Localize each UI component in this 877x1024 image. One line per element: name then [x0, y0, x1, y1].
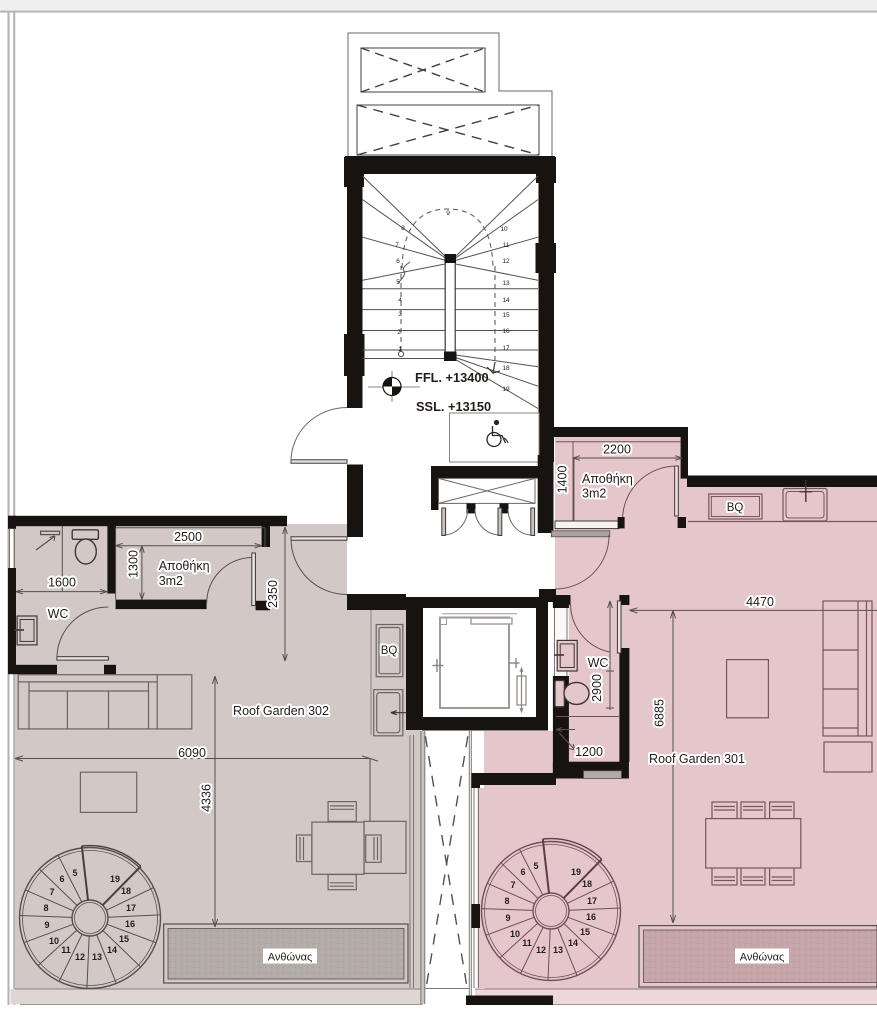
svg-text:1300: 1300 [127, 550, 141, 578]
svg-text:3: 3 [398, 311, 402, 318]
svg-text:4470: 4470 [746, 595, 774, 609]
svg-text:14: 14 [502, 297, 510, 304]
svg-text:15: 15 [119, 934, 129, 944]
svg-text:14: 14 [107, 945, 117, 955]
svg-text:10: 10 [49, 936, 59, 946]
svg-text:19: 19 [110, 874, 120, 884]
svg-text:9: 9 [44, 920, 49, 930]
svg-text:9: 9 [446, 210, 450, 217]
svg-text:6: 6 [396, 258, 400, 265]
svg-text:6090: 6090 [178, 746, 206, 760]
svg-text:2: 2 [397, 329, 401, 336]
svg-text:Αποθήκη: Αποθήκη [582, 472, 633, 486]
svg-text:2350: 2350 [266, 580, 280, 608]
svg-text:10: 10 [500, 226, 508, 233]
svg-text:8: 8 [401, 225, 405, 232]
svg-text:5: 5 [533, 861, 538, 871]
svg-text:19: 19 [502, 386, 510, 393]
svg-text:14: 14 [568, 938, 578, 948]
svg-text:12: 12 [502, 258, 510, 265]
svg-text:11: 11 [503, 242, 510, 249]
svg-text:Roof Garden 302: Roof Garden 302 [233, 704, 329, 718]
svg-text:1400: 1400 [556, 466, 570, 494]
svg-text:13: 13 [92, 952, 102, 962]
svg-text:1600: 1600 [48, 576, 76, 590]
svg-text:16: 16 [502, 328, 510, 335]
svg-text:18: 18 [121, 886, 131, 896]
svg-text:8: 8 [504, 896, 509, 906]
svg-text:16: 16 [586, 912, 596, 922]
svg-text:15: 15 [580, 927, 590, 937]
svg-text:4336: 4336 [200, 784, 214, 812]
svg-text:9: 9 [505, 913, 510, 923]
svg-text:6: 6 [59, 874, 64, 884]
svg-text:12: 12 [75, 952, 85, 962]
svg-text:BQ: BQ [381, 645, 398, 657]
svg-text:1200: 1200 [575, 745, 603, 759]
svg-text:Ανθώνας: Ανθώνας [740, 952, 785, 964]
svg-text:3m2: 3m2 [159, 574, 183, 588]
svg-text:7: 7 [510, 880, 515, 890]
svg-text:8: 8 [43, 903, 48, 913]
svg-text:17: 17 [587, 896, 597, 906]
svg-text:13: 13 [502, 280, 510, 287]
svg-text:7: 7 [395, 242, 399, 249]
svg-text:WC: WC [48, 607, 69, 621]
svg-text:13: 13 [553, 945, 563, 955]
svg-text:10: 10 [510, 929, 520, 939]
svg-text:11: 11 [522, 938, 532, 948]
svg-text:15: 15 [502, 312, 510, 319]
svg-text:BQ: BQ [727, 502, 744, 514]
svg-text:2900: 2900 [590, 674, 604, 702]
svg-text:3m2: 3m2 [582, 487, 606, 501]
svg-text:2500: 2500 [174, 530, 202, 544]
svg-text:16: 16 [125, 919, 135, 929]
svg-text:17: 17 [502, 345, 510, 352]
svg-text:12: 12 [536, 945, 546, 955]
svg-text:7: 7 [49, 887, 54, 897]
svg-text:2200: 2200 [603, 443, 631, 457]
svg-text:1: 1 [398, 346, 402, 353]
svg-text:5: 5 [396, 279, 400, 286]
svg-text:WC: WC [588, 656, 609, 670]
svg-text:FFL. +13400: FFL. +13400 [415, 370, 489, 385]
svg-text:5: 5 [72, 868, 77, 878]
svg-text:11: 11 [61, 945, 71, 955]
svg-text:Αποθήκη: Αποθήκη [159, 559, 210, 573]
svg-text:6885: 6885 [653, 699, 667, 727]
svg-text:19: 19 [571, 867, 581, 877]
svg-text:18: 18 [502, 365, 510, 372]
svg-text:18: 18 [582, 879, 592, 889]
svg-text:SSL. +13150: SSL. +13150 [416, 399, 491, 414]
svg-text:Roof Garden 301: Roof Garden 301 [649, 752, 745, 766]
svg-text:Ανθώνας: Ανθώνας [268, 952, 313, 964]
svg-text:6: 6 [520, 867, 525, 877]
svg-text:4: 4 [398, 297, 402, 304]
svg-text:17: 17 [126, 903, 136, 913]
